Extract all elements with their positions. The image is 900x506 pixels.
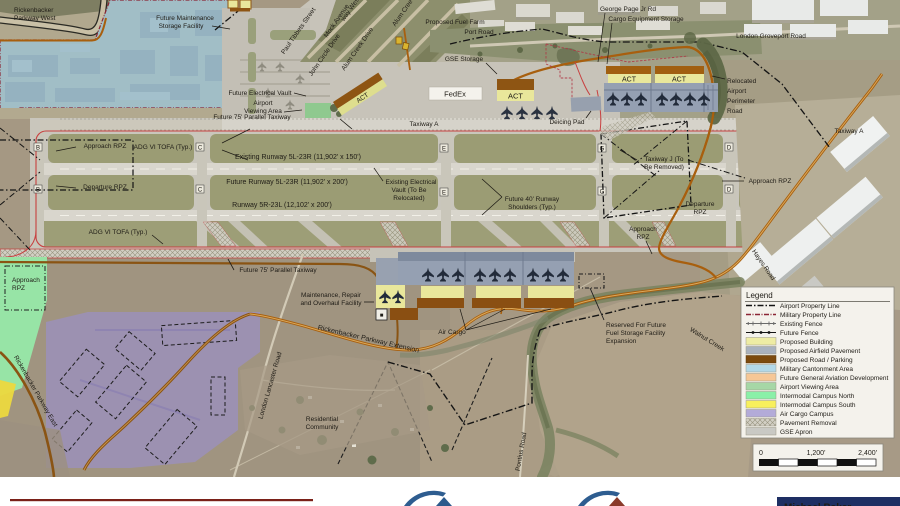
svg-text:Existing Runway 5L-23R (11,902: Existing Runway 5L-23R (11,902' x 150'): [235, 154, 361, 161]
svg-text:Existing Fence: Existing Fence: [780, 321, 823, 328]
svg-text:2,400': 2,400': [858, 450, 877, 457]
svg-text:Perimeter: Perimeter: [727, 98, 756, 105]
svg-text:Vault (To Be: Vault (To Be: [392, 187, 427, 194]
svg-text:Rickenbacker: Rickenbacker: [14, 7, 54, 14]
svg-text:Community: Community: [306, 424, 340, 431]
svg-text:Future 75' Parallel Taxiway: Future 75' Parallel Taxiway: [213, 114, 291, 121]
svg-text:Approach RPZ: Approach RPZ: [749, 178, 792, 185]
svg-text:Future Runway 5L-23R (11,902': Future Runway 5L-23R (11,902' x 200'): [226, 179, 348, 186]
svg-text:London Groveport Road: London Groveport Road: [736, 33, 806, 40]
svg-text:Airport Viewing Area: Airport Viewing Area: [780, 384, 839, 391]
svg-text:Legend: Legend: [746, 291, 773, 300]
svg-text:Be Removed): Be Removed): [644, 164, 684, 171]
svg-text:Future 75' Parallel Taxiway: Future 75' Parallel Taxiway: [239, 267, 317, 274]
svg-text:Deicing Pad: Deicing Pad: [549, 119, 584, 126]
svg-text:Taxiway A: Taxiway A: [410, 121, 440, 128]
svg-text:Taxiway A: Taxiway A: [835, 128, 865, 135]
svg-text:Taxiway J (To: Taxiway J (To: [644, 156, 683, 163]
svg-text:Air Cargo Campus: Air Cargo Campus: [780, 411, 834, 418]
svg-text:George Page Jr Rd: George Page Jr Rd: [600, 6, 656, 13]
svg-text:G: G: [600, 190, 605, 196]
svg-text:Parkway West: Parkway West: [14, 15, 56, 22]
svg-text:ACT: ACT: [622, 77, 637, 84]
svg-text:ADG VI TOFA (Typ.): ADG VI TOFA (Typ.): [89, 229, 148, 236]
svg-text:Airport: Airport: [253, 100, 272, 107]
svg-text:Airport Property Line: Airport Property Line: [780, 303, 840, 310]
svg-text:RPZ: RPZ: [12, 285, 25, 292]
svg-text:Expansion: Expansion: [606, 338, 637, 345]
svg-text:Maintenance, Repair: Maintenance, Repair: [301, 292, 362, 299]
svg-text:ADG VI TOFA (Typ.): ADG VI TOFA (Typ.): [134, 144, 193, 151]
svg-text:Storage Facility: Storage Facility: [159, 23, 205, 30]
svg-text:E: E: [442, 191, 446, 197]
svg-text:Relocated: Relocated: [727, 78, 757, 85]
svg-text:and Overhaul Facility: and Overhaul Facility: [300, 300, 362, 307]
svg-text:D: D: [727, 188, 732, 194]
svg-text:Relocated): Relocated): [393, 195, 424, 202]
svg-text:Michael Baker: Michael Baker: [784, 503, 851, 506]
svg-text:ACT: ACT: [508, 92, 523, 101]
svg-text:Departure RPZ: Departure RPZ: [83, 184, 127, 191]
svg-text:Proposed Road / Parking: Proposed Road / Parking: [780, 357, 853, 364]
svg-text:Future Fence: Future Fence: [780, 330, 819, 337]
svg-text:Future 40' Runway: Future 40' Runway: [505, 196, 560, 203]
svg-text:Military Cantonment Area: Military Cantonment Area: [780, 366, 853, 373]
svg-text:0: 0: [759, 450, 763, 457]
svg-text:Residential: Residential: [306, 416, 339, 423]
svg-text:Approach: Approach: [629, 226, 657, 233]
svg-text:FedEx: FedEx: [444, 90, 466, 99]
svg-text:Air Cargo: Air Cargo: [438, 329, 466, 336]
svg-text:Proposed Airfield Pavement: Proposed Airfield Pavement: [780, 348, 860, 355]
svg-text:D: D: [727, 146, 732, 152]
svg-text:Port Road: Port Road: [464, 29, 494, 36]
svg-text:■: ■: [380, 313, 384, 319]
svg-text:Intermodal Campus South: Intermodal Campus South: [780, 402, 856, 409]
svg-text:GSE Apron: GSE Apron: [780, 429, 813, 436]
svg-text:Road: Road: [727, 108, 743, 115]
svg-text:Future Electrical Vault: Future Electrical Vault: [228, 90, 291, 97]
svg-text:Existing Electrical: Existing Electrical: [386, 179, 437, 186]
svg-text:C: C: [198, 146, 203, 152]
svg-text:Shoulders (Typ.): Shoulders (Typ.): [508, 204, 556, 211]
svg-text:RPZ: RPZ: [694, 209, 707, 216]
svg-text:Future General Aviation Develo: Future General Aviation Development: [780, 375, 888, 382]
svg-text:B: B: [36, 146, 40, 152]
svg-text:Runway 5R-23L (12,102' x 200'): Runway 5R-23L (12,102' x 200'): [232, 202, 332, 209]
svg-text:RPZ: RPZ: [637, 234, 650, 241]
svg-text:E: E: [442, 147, 446, 153]
svg-text:Departure: Departure: [686, 201, 715, 208]
svg-text:Proposed Building: Proposed Building: [780, 339, 833, 346]
svg-text:Intermodal Campus North: Intermodal Campus North: [780, 393, 855, 400]
svg-text:Fuel Storage Facility: Fuel Storage Facility: [606, 330, 666, 337]
svg-text:Future Maintenance: Future Maintenance: [156, 15, 214, 22]
svg-text:Reserved For Future: Reserved For Future: [606, 322, 666, 329]
svg-text:Approach RPZ: Approach RPZ: [84, 143, 127, 150]
svg-text:Proposed Fuel Farm: Proposed Fuel Farm: [425, 19, 484, 26]
svg-text:Approach: Approach: [12, 277, 40, 284]
svg-text:Cargo Equipment Storage: Cargo Equipment Storage: [608, 16, 684, 23]
svg-text:Military Property Line: Military Property Line: [780, 312, 841, 319]
svg-text:1,200': 1,200': [807, 450, 826, 457]
svg-text:Pavement Removal: Pavement Removal: [780, 420, 837, 427]
svg-text:ACT: ACT: [672, 77, 687, 84]
svg-text:Airport: Airport: [727, 88, 746, 95]
svg-text:GSE Storage: GSE Storage: [445, 56, 484, 63]
svg-text:C: C: [198, 188, 203, 194]
